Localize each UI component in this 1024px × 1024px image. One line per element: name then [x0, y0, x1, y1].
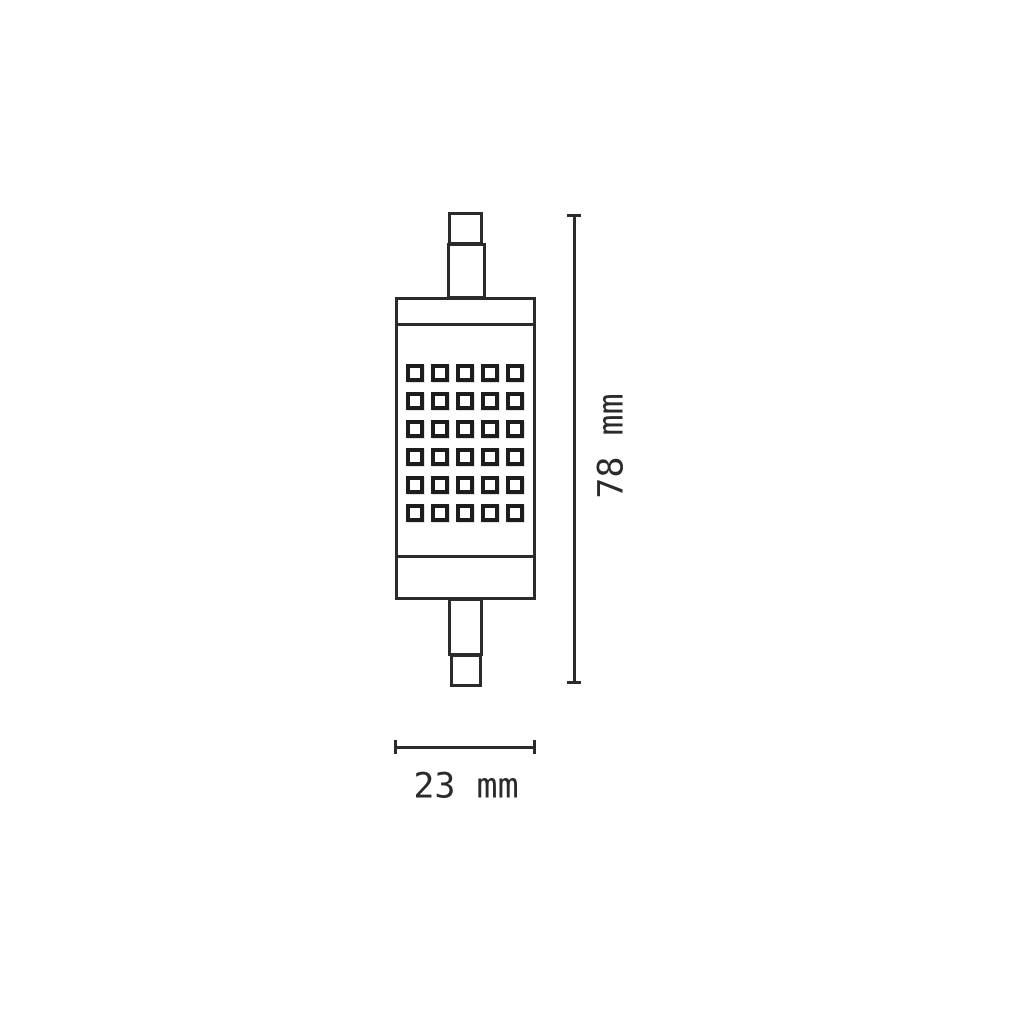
led-chip	[431, 420, 449, 438]
led-chip	[481, 504, 499, 522]
led-chip	[481, 420, 499, 438]
height-dimension-label: 78 mm	[595, 393, 630, 498]
led-chip	[406, 392, 424, 410]
height-dimension-tick-bottom	[567, 681, 581, 684]
led-chip	[506, 420, 524, 438]
led-chip	[506, 504, 524, 522]
led-chip	[506, 392, 524, 410]
lamp-bottom-pin-tip	[450, 654, 482, 687]
width-dimension-tick-right	[533, 740, 536, 754]
lamp-top-pin-tip	[448, 212, 483, 245]
led-chip	[431, 392, 449, 410]
led-chip	[456, 504, 474, 522]
led-chip	[481, 364, 499, 382]
led-chip	[456, 420, 474, 438]
lamp-top-cap-line	[395, 323, 536, 326]
width-dimension-label: 23 mm	[413, 770, 518, 805]
led-chip	[406, 364, 424, 382]
led-chip	[406, 476, 424, 494]
led-panel	[406, 364, 524, 522]
height-dimension-tick-top	[567, 214, 581, 217]
led-chip	[431, 364, 449, 382]
width-dimension-tick-left	[394, 740, 397, 754]
led-chip	[481, 448, 499, 466]
led-chip	[431, 448, 449, 466]
technical-drawing-canvas: 78 mm 23 mm	[0, 0, 1024, 1024]
led-chip	[456, 448, 474, 466]
led-chip	[481, 392, 499, 410]
led-chip	[456, 364, 474, 382]
lamp-bottom-cap-line	[395, 555, 536, 558]
led-chip	[406, 420, 424, 438]
led-chip	[506, 364, 524, 382]
height-dimension-line	[573, 215, 576, 684]
led-chip	[406, 448, 424, 466]
led-chip	[431, 476, 449, 494]
led-chip	[406, 504, 424, 522]
led-chip	[481, 476, 499, 494]
lamp-top-pin-neck	[447, 243, 486, 299]
led-chip	[431, 504, 449, 522]
lamp-bottom-pin-neck	[448, 598, 483, 656]
led-chip	[506, 448, 524, 466]
led-chip	[456, 476, 474, 494]
width-dimension-line	[395, 746, 536, 749]
led-chip	[506, 476, 524, 494]
led-chip	[456, 392, 474, 410]
